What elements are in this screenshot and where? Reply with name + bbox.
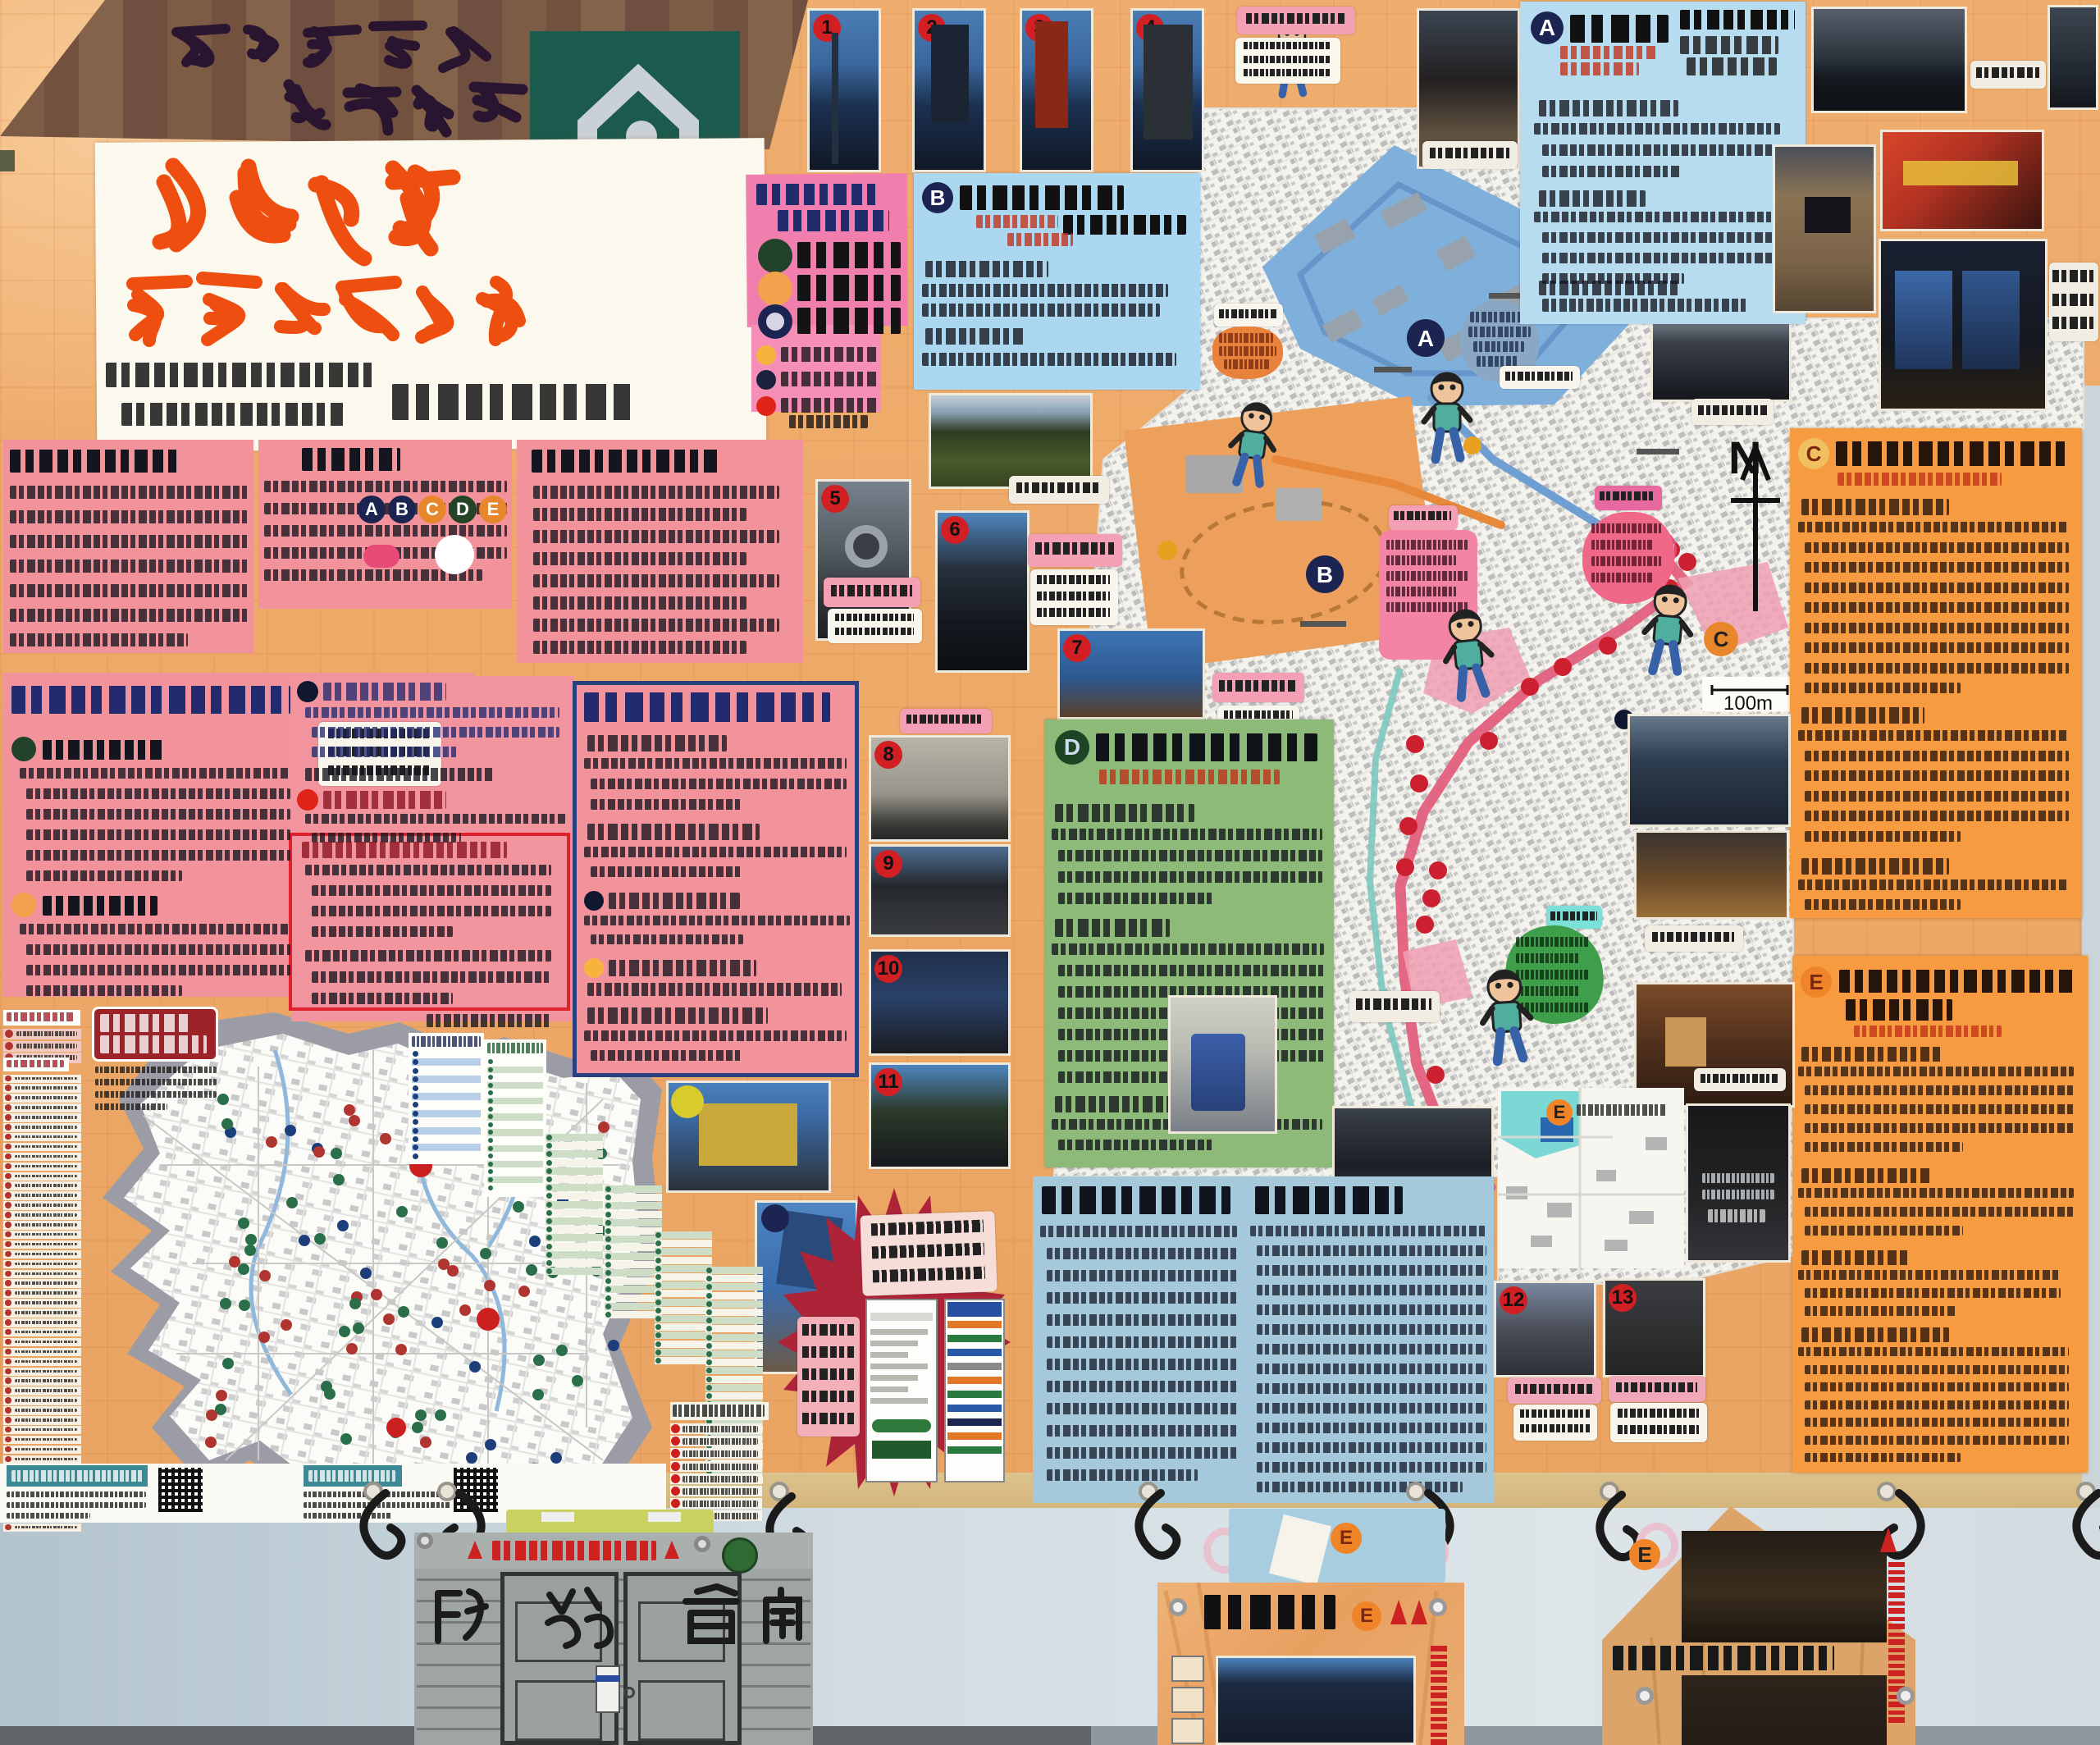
svg-text:A: A	[1417, 326, 1434, 351]
svg-text:C: C	[1714, 627, 1729, 651]
svg-text:100m: 100m	[1723, 692, 1773, 715]
svg-text:B: B	[1317, 562, 1333, 587]
svg-text:N: N	[1728, 432, 1761, 483]
